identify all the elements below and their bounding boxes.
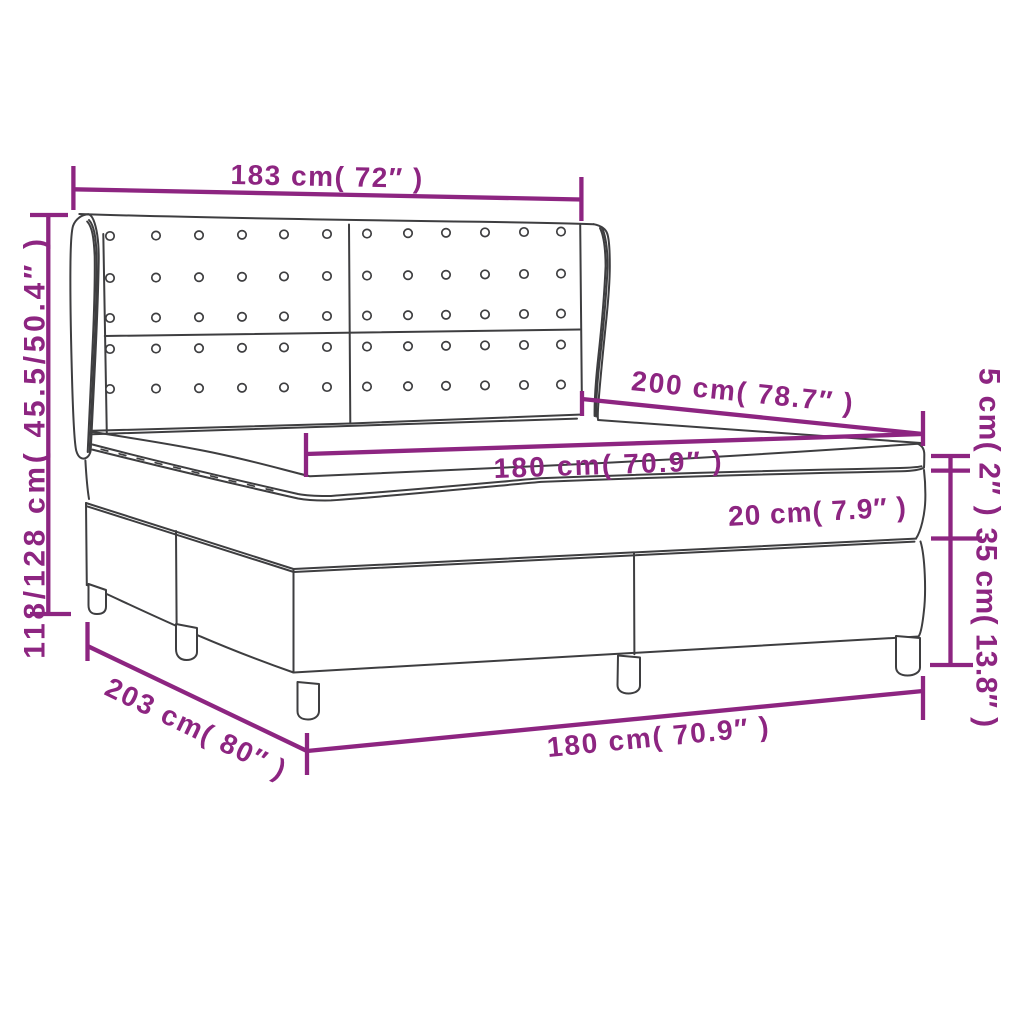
svg-text:118/128 cm( 45.5/50.4″ ): 118/128 cm( 45.5/50.4″ ) bbox=[19, 235, 52, 658]
svg-text:35 cm( 13.8″ ): 35 cm( 13.8″ ) bbox=[970, 528, 1003, 728]
svg-text:183 cm( 72″ ): 183 cm( 72″ ) bbox=[230, 159, 424, 194]
svg-text:200 cm( 78.7″ ): 200 cm( 78.7″ ) bbox=[630, 365, 856, 419]
svg-text:5 cm( 2″ ): 5 cm( 2″ ) bbox=[973, 368, 1006, 517]
svg-text:20 cm( 7.9″ ): 20 cm( 7.9″ ) bbox=[727, 491, 907, 532]
svg-text:180 cm( 70.9″ ): 180 cm( 70.9″ ) bbox=[493, 445, 724, 484]
